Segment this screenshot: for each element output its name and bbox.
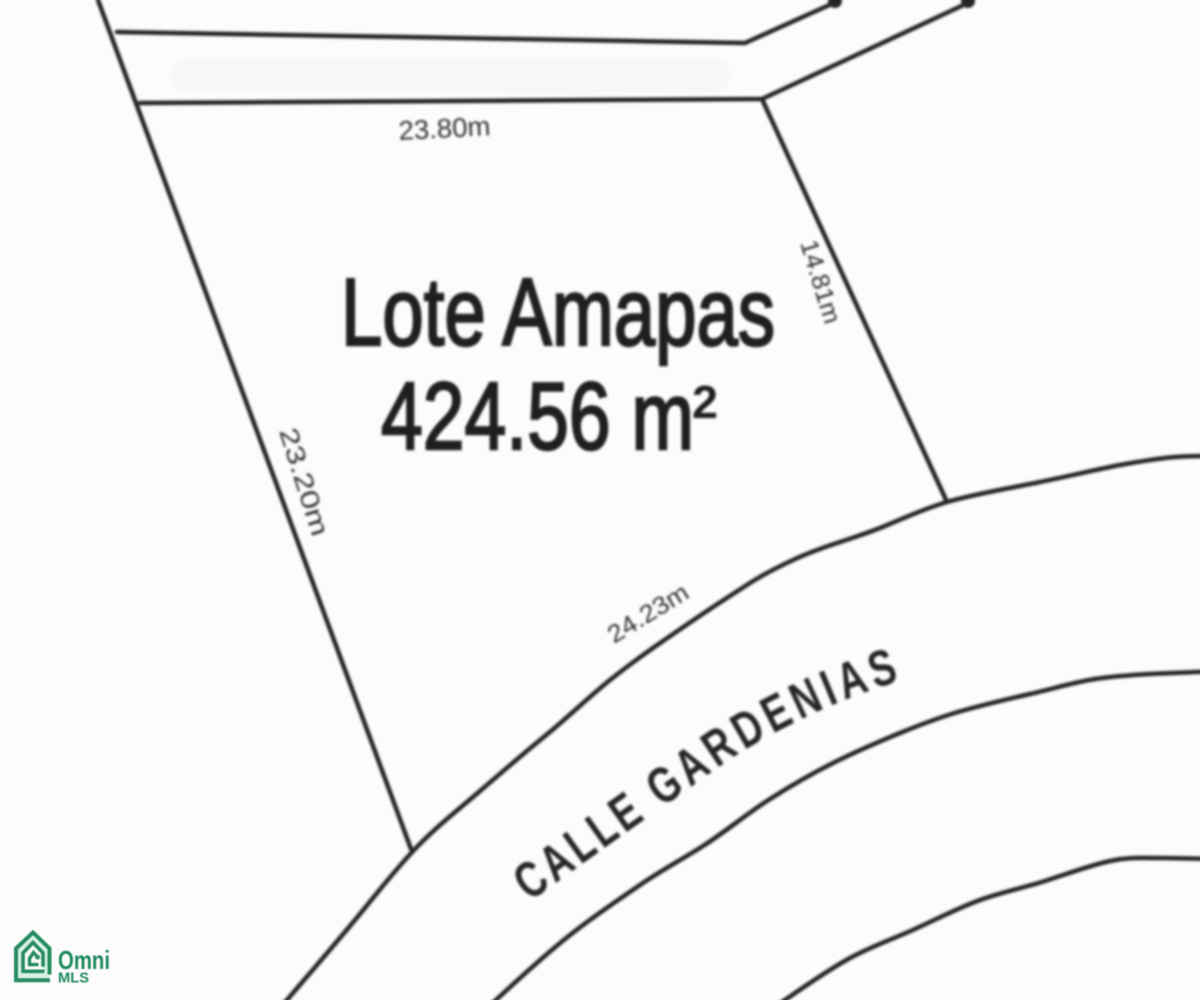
svg-text:MLS: MLS bbox=[58, 970, 89, 987]
